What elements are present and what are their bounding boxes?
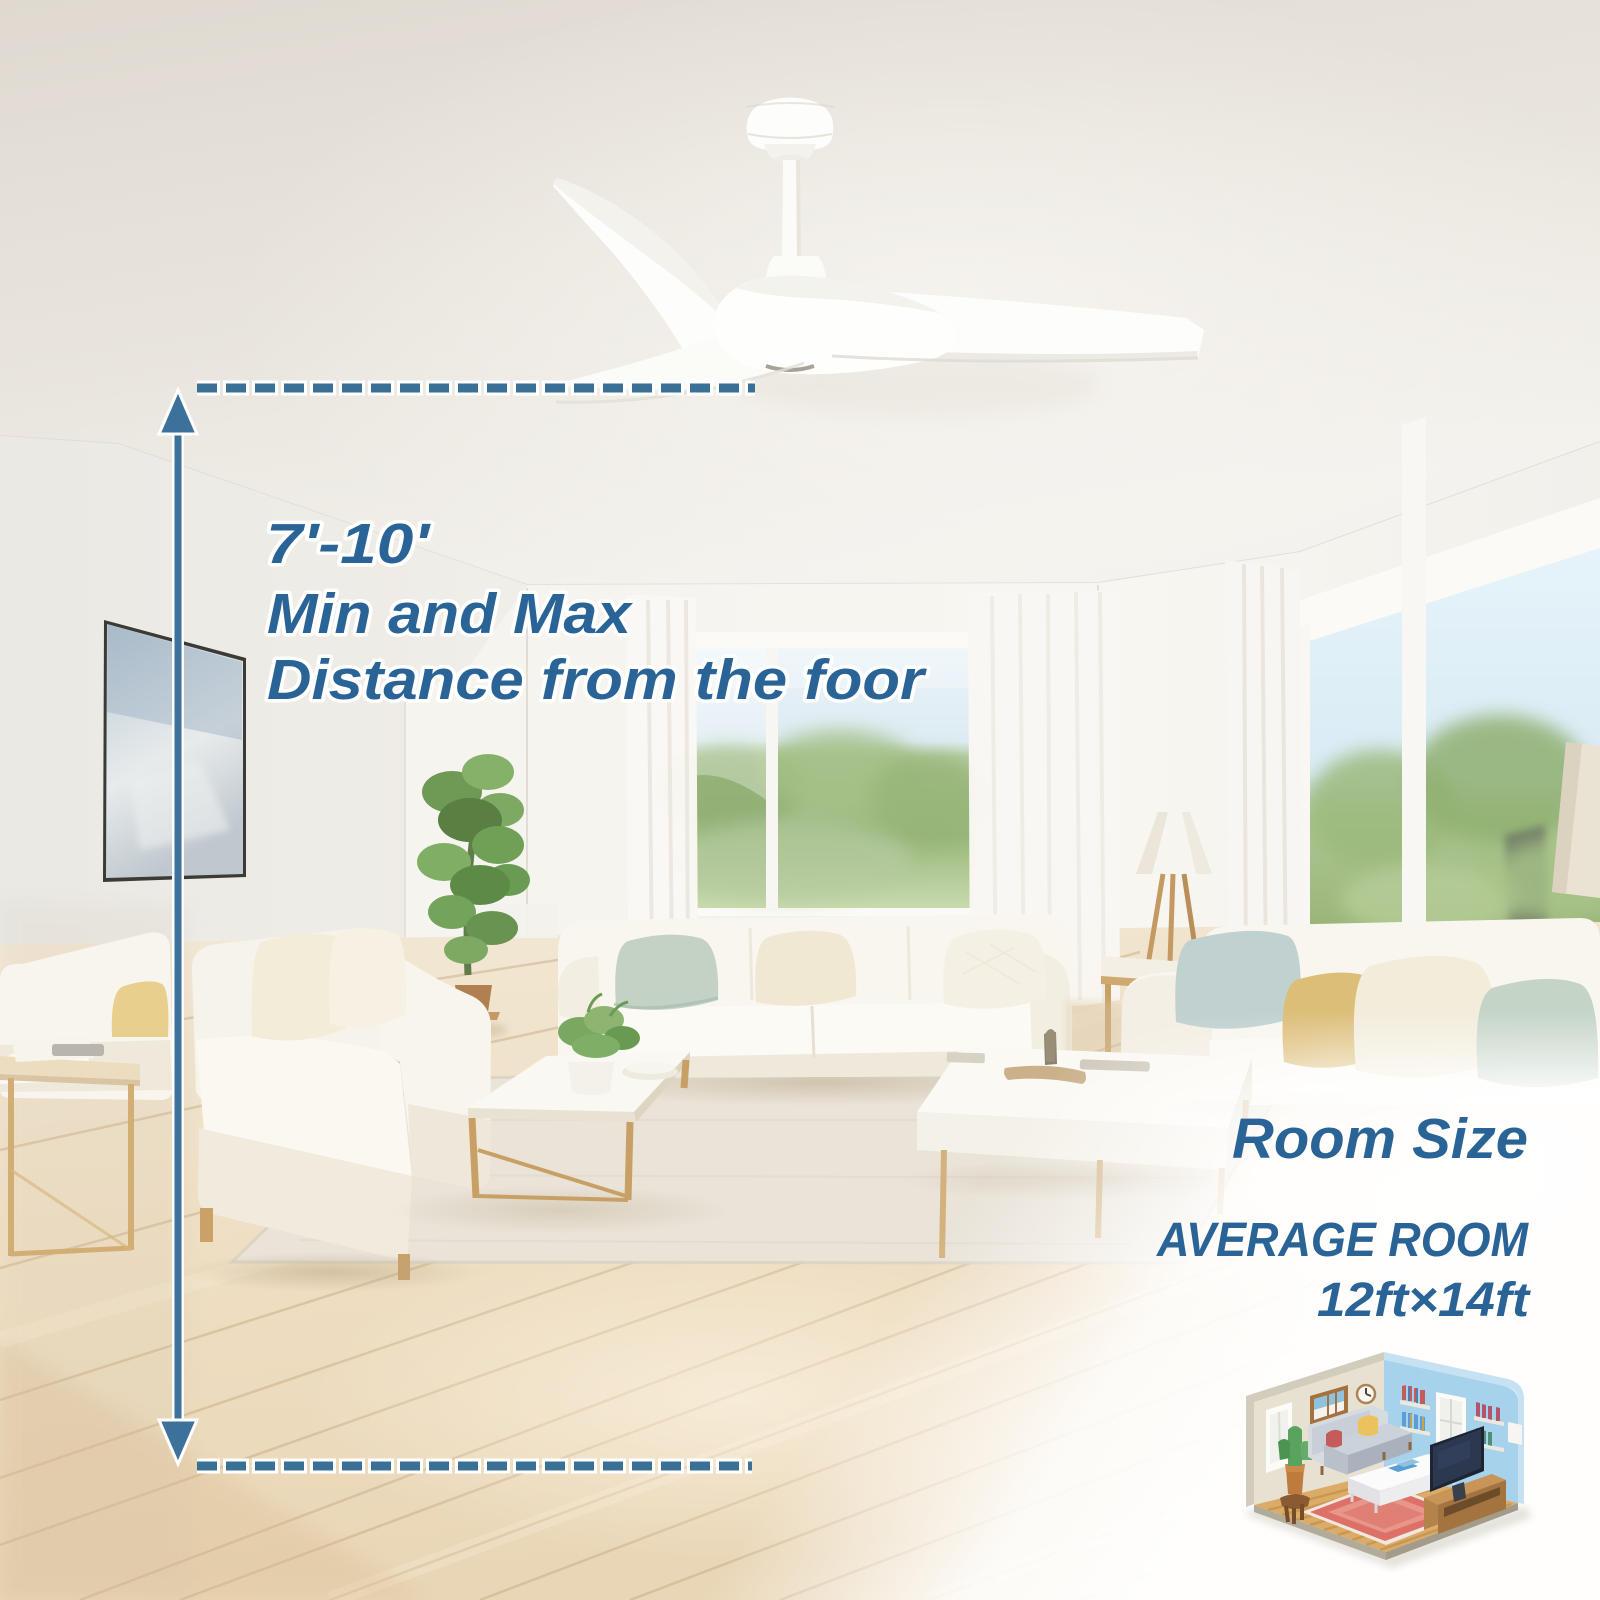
svg-text:AVERAGE ROOM: AVERAGE ROOM [1156,1214,1529,1267]
svg-text:12ft×14ft: 12ft×14ft [1317,1274,1531,1327]
svg-text:Distance from the foor: Distance from the foor [267,648,927,712]
svg-text:Min and Max: Min and Max [267,582,633,646]
svg-text:7'-10': 7'-10' [266,512,432,576]
svg-text:Room Size: Room Size [1232,1107,1528,1171]
